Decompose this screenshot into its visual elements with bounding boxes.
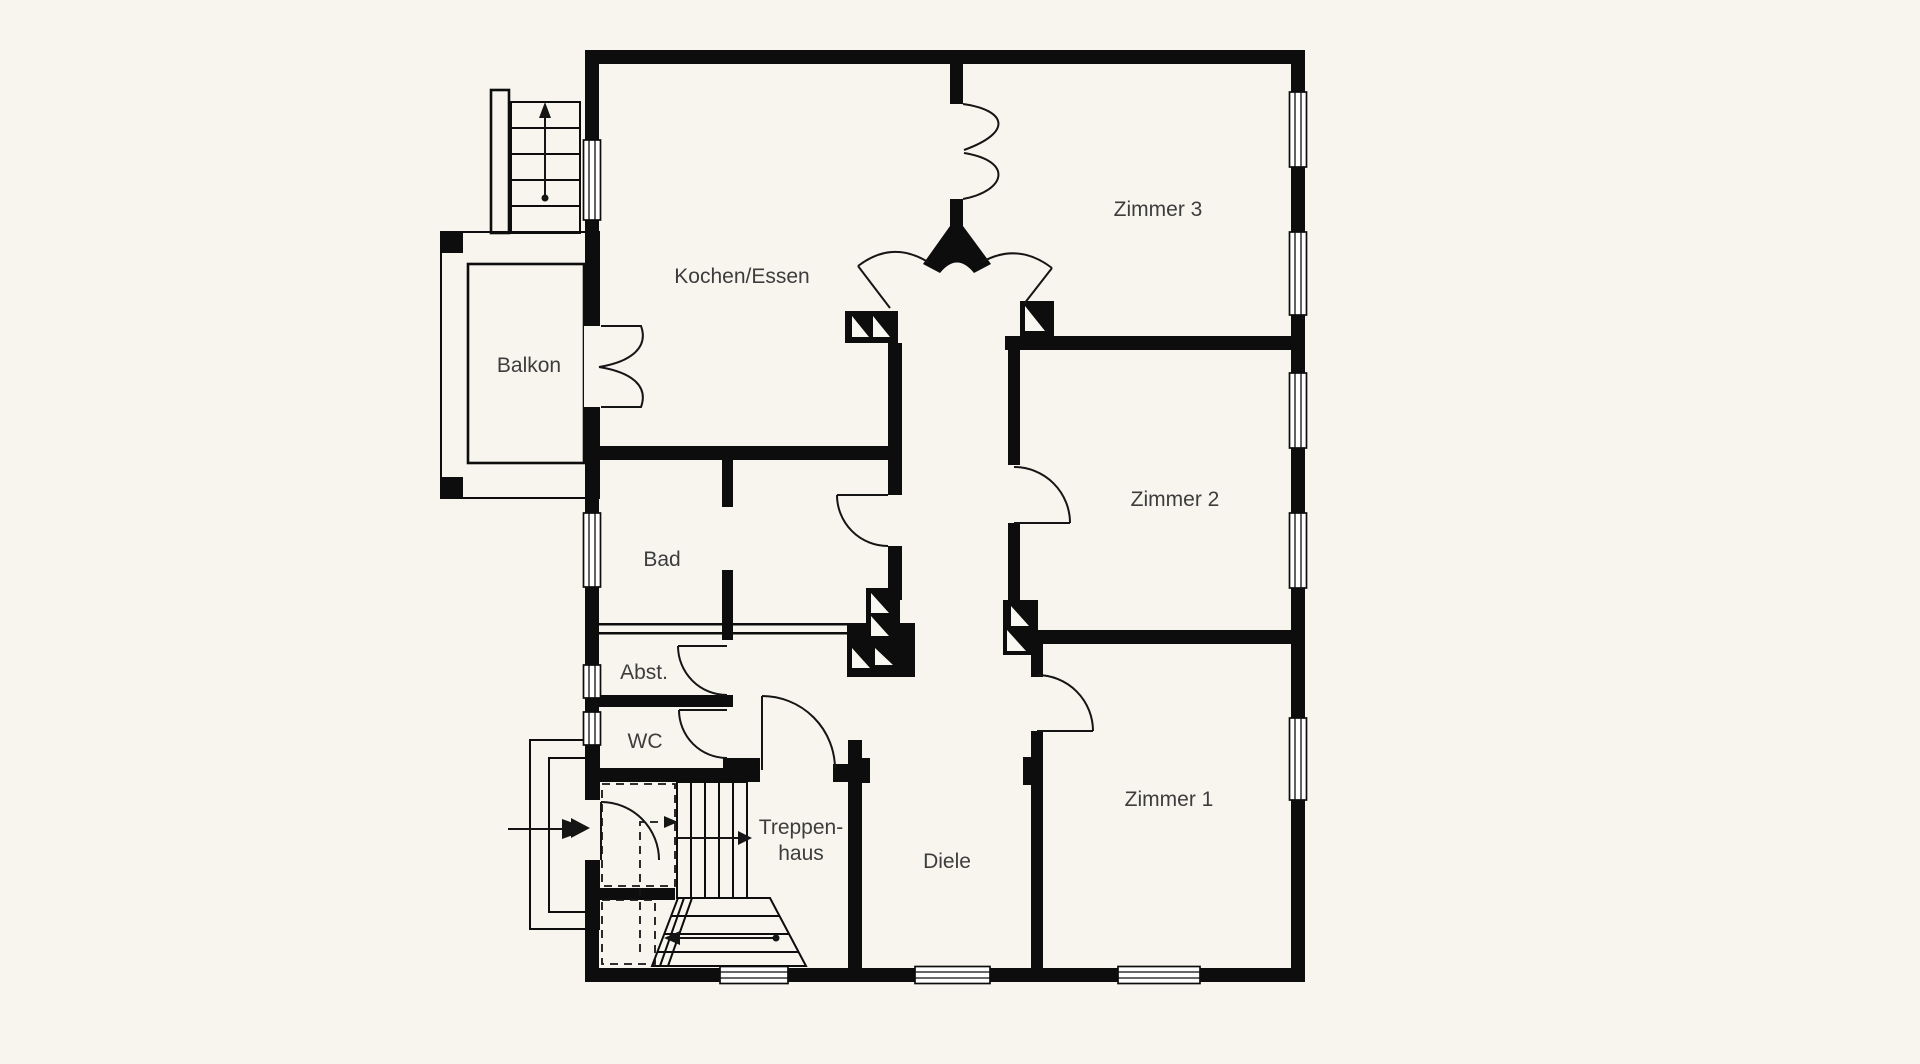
- room-label-zimmer3: Zimmer 3: [1114, 198, 1203, 221]
- window-zimmer1-east: [1290, 718, 1307, 800]
- window-zimmer2-2: [1290, 513, 1307, 588]
- thin-wall-bath-bottom: [599, 623, 722, 626]
- room-label-kochen-essen: Kochen/Essen: [674, 265, 809, 288]
- wall-bath-corridor-stub-b: [722, 570, 733, 640]
- window-abst: [584, 665, 601, 698]
- window-zimmer3-1: [1290, 92, 1307, 167]
- window-zimmer1-south: [1118, 967, 1200, 984]
- balcony-corner-post: [441, 477, 463, 498]
- room-label-bad: Bad: [643, 548, 680, 571]
- wall-wc-block: [723, 758, 760, 782]
- wall-under-stairs: [585, 888, 675, 900]
- window-bad: [584, 513, 601, 587]
- window-zimmer2-1: [1290, 373, 1307, 448]
- wall-zimmer3-stub-top: [950, 64, 963, 104]
- chimney-kitchen-hall: [845, 311, 898, 343]
- room-label-abst: Abst.: [620, 661, 668, 684]
- wall-zimmer1-west-lower: [1031, 731, 1043, 968]
- thin-wall-corridor-bottom: [733, 632, 847, 635]
- wall-hall-west-upper: [888, 343, 902, 495]
- balcony-door-opening: [584, 326, 600, 407]
- window-kitchen-stairs: [584, 140, 601, 220]
- window-zimmer3-2: [1290, 232, 1307, 315]
- wall-bath-corridor-stub-a: [722, 460, 733, 507]
- window-wc: [584, 712, 601, 745]
- room-label-treppenhaus-line1: Treppen-: [759, 816, 843, 839]
- chimney-zimmer3-corner: [1020, 301, 1054, 337]
- wall-hall-east-lower: [1008, 523, 1020, 600]
- building-entrance-opening: [584, 800, 600, 860]
- window-diele-south: [915, 967, 990, 984]
- floor-plan-drawing: Kochen/Essen Zimmer 3 Zimmer 2 Zimmer 1 …: [0, 0, 1920, 1064]
- wall-abst-bottom: [599, 695, 733, 707]
- room-label-zimmer1: Zimmer 1: [1125, 788, 1214, 811]
- stairs-arrow-start-dot: [542, 195, 549, 202]
- window-treppenhaus-south: [720, 967, 788, 984]
- lower-flight-arrow-dot: [773, 935, 780, 942]
- chimney-diele-corner: [1003, 600, 1038, 655]
- wall-stairwell-east-step: [848, 758, 870, 783]
- room-label-wc: WC: [628, 730, 663, 753]
- room-label-treppenhaus-line2: haus: [778, 842, 824, 865]
- balcony-corner-post: [441, 232, 463, 253]
- wall-zimmer2-zimmer1: [1032, 630, 1291, 644]
- floor-plan-canvas: Kochen/Essen Zimmer 3 Zimmer 2 Zimmer 1 …: [0, 0, 1920, 1064]
- background: [0, 0, 1920, 1064]
- room-label-balkon: Balkon: [497, 354, 561, 377]
- outer-wall-top: [585, 50, 1305, 64]
- thin-wall-bath-bottom: [599, 632, 722, 635]
- room-label-diele: Diele: [923, 850, 971, 873]
- room-label-zimmer2: Zimmer 2: [1131, 488, 1220, 511]
- wall-zimmer3-zimmer2: [1005, 336, 1291, 350]
- wall-zimmer3-stub-bottom: [950, 199, 963, 226]
- wall-hall-east-upper: [1008, 337, 1020, 465]
- wall-diele-pilaster: [1023, 757, 1032, 785]
- thin-wall-corridor-bottom: [733, 623, 847, 626]
- wall-kitchen-bath: [599, 446, 890, 460]
